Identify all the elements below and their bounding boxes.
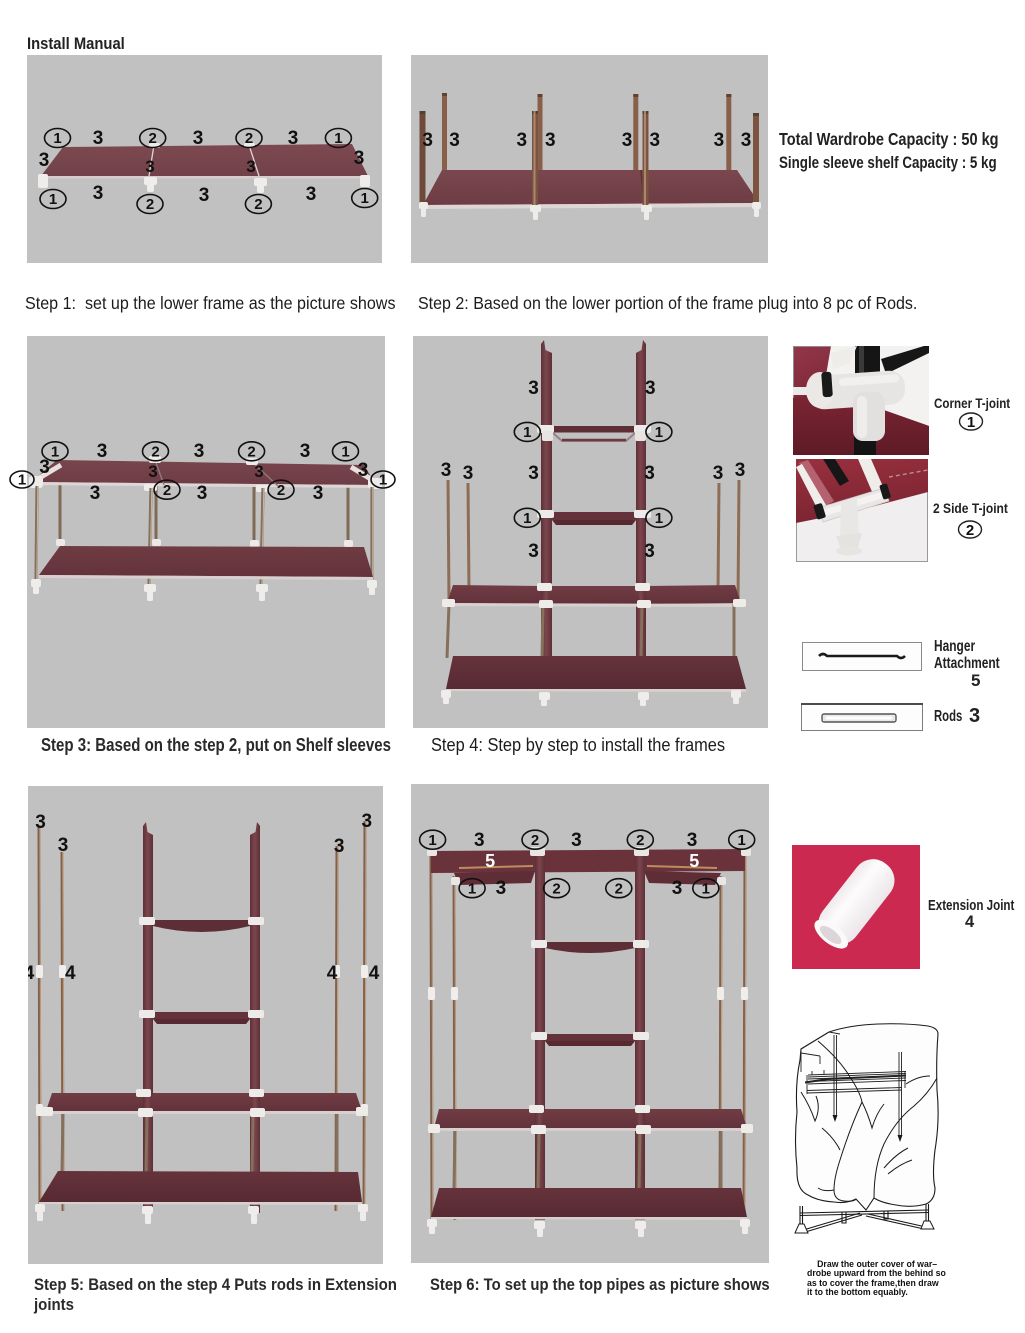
svg-text:2: 2 (277, 482, 285, 499)
svg-text:3: 3 (362, 811, 373, 832)
svg-text:1: 1 (738, 832, 746, 849)
svg-text:3: 3 (496, 878, 507, 899)
svg-text:1: 1 (468, 881, 476, 898)
svg-text:3: 3 (441, 460, 452, 481)
svg-text:1: 1 (51, 444, 59, 461)
svg-text:3: 3 (741, 130, 752, 151)
svg-text:1: 1 (967, 414, 975, 431)
svg-text:2: 2 (254, 196, 262, 213)
svg-text:3: 3 (39, 150, 50, 171)
svg-text:3: 3 (306, 184, 317, 205)
svg-text:3: 3 (463, 463, 474, 484)
svg-text:1: 1 (18, 472, 26, 489)
svg-text:3: 3 (193, 128, 204, 149)
svg-text:3: 3 (246, 157, 255, 176)
svg-text:3: 3 (300, 441, 311, 462)
svg-text:1: 1 (53, 130, 61, 147)
svg-text:3: 3 (145, 157, 154, 176)
svg-text:3: 3 (622, 130, 633, 151)
svg-text:3: 3 (148, 462, 157, 481)
svg-text:3: 3 (713, 463, 724, 484)
svg-text:3: 3 (58, 835, 69, 856)
svg-text:2: 2 (245, 130, 253, 147)
svg-text:3: 3 (358, 460, 369, 481)
svg-text:1: 1 (523, 424, 531, 441)
svg-text:3: 3 (687, 830, 698, 851)
svg-text:2: 2 (966, 522, 974, 539)
svg-text:3: 3 (422, 130, 433, 151)
svg-text:1: 1 (361, 190, 369, 207)
svg-text:3: 3 (474, 830, 485, 851)
svg-text:1: 1 (379, 472, 387, 489)
svg-text:3: 3 (528, 378, 539, 399)
svg-text:3: 3 (449, 130, 460, 151)
svg-text:2: 2 (615, 881, 623, 898)
svg-text:1: 1 (655, 424, 663, 441)
svg-text:3: 3 (93, 183, 104, 204)
svg-text:3: 3 (735, 460, 746, 481)
svg-text:3: 3 (35, 812, 46, 833)
svg-text:1: 1 (655, 510, 663, 527)
svg-text:1: 1 (49, 191, 57, 208)
svg-text:3: 3 (313, 483, 324, 504)
svg-text:2: 2 (149, 130, 157, 147)
svg-text:3: 3 (97, 441, 108, 462)
svg-text:1: 1 (341, 444, 349, 461)
svg-text:5: 5 (485, 851, 495, 871)
svg-text:2: 2 (163, 482, 171, 499)
svg-text:5: 5 (689, 851, 699, 871)
svg-text:3: 3 (288, 128, 299, 149)
svg-text:3: 3 (644, 463, 655, 484)
svg-text:2: 2 (531, 832, 539, 849)
svg-text:3: 3 (672, 878, 683, 899)
svg-text:2: 2 (151, 444, 159, 461)
svg-text:2: 2 (247, 444, 255, 461)
svg-text:4: 4 (28, 963, 35, 984)
svg-text:1: 1 (428, 832, 436, 849)
svg-text:3: 3 (650, 130, 661, 151)
svg-text:3: 3 (197, 483, 208, 504)
svg-text:3: 3 (645, 378, 656, 399)
svg-text:3: 3 (334, 836, 345, 857)
svg-text:3: 3 (194, 441, 205, 462)
svg-text:2: 2 (552, 881, 560, 898)
svg-text:2: 2 (636, 832, 644, 849)
svg-text:3: 3 (254, 462, 263, 481)
svg-text:3: 3 (571, 830, 582, 851)
svg-text:3: 3 (528, 463, 539, 484)
svg-text:3: 3 (93, 128, 104, 149)
svg-text:1: 1 (334, 130, 342, 147)
svg-text:3: 3 (714, 130, 725, 151)
svg-text:4: 4 (369, 963, 380, 984)
svg-text:3: 3 (90, 483, 101, 504)
svg-text:4: 4 (65, 963, 76, 984)
svg-text:3: 3 (517, 130, 528, 151)
svg-text:4: 4 (327, 963, 338, 984)
svg-text:3: 3 (644, 541, 655, 562)
svg-text:1: 1 (702, 881, 710, 898)
svg-text:3: 3 (199, 185, 210, 206)
svg-text:3: 3 (545, 130, 556, 151)
svg-text:3: 3 (528, 541, 539, 562)
svg-text:2: 2 (146, 196, 154, 213)
svg-text:1: 1 (523, 510, 531, 527)
svg-text:3: 3 (354, 148, 365, 169)
